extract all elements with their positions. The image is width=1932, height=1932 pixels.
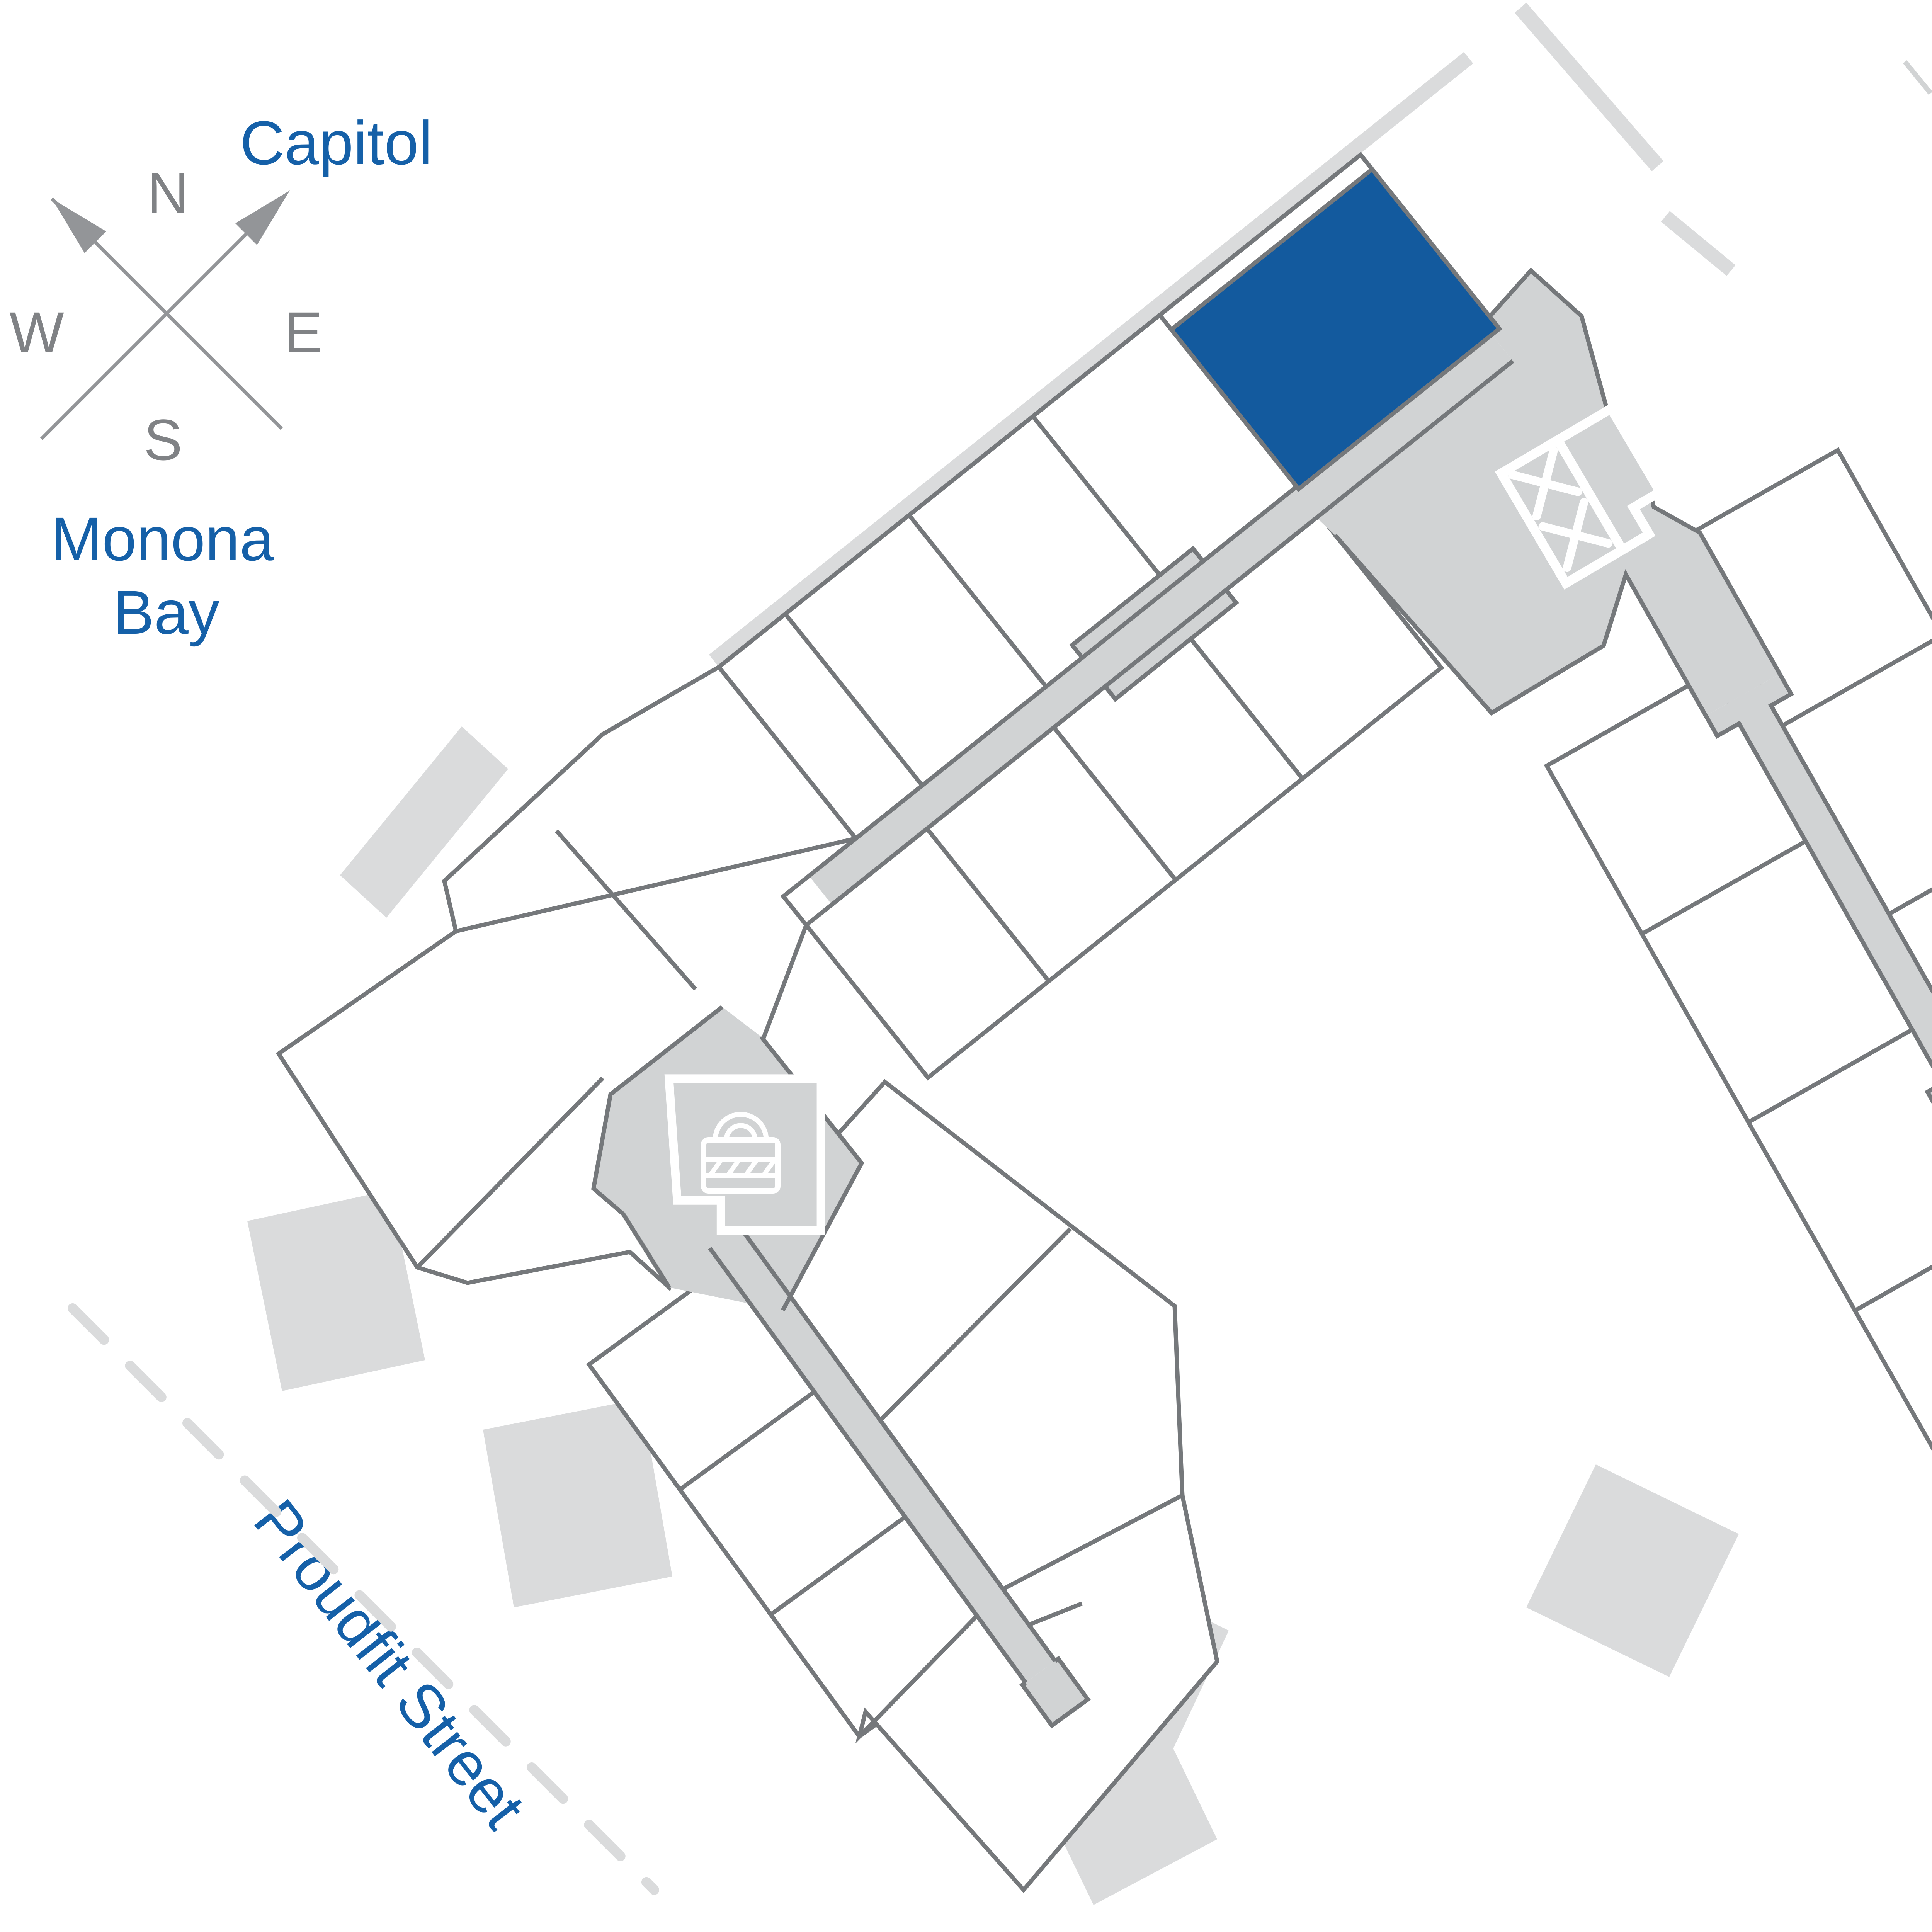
svg-text:N: N	[147, 161, 189, 226]
svg-text:Bay: Bay	[113, 578, 219, 647]
svg-text:S: S	[144, 407, 182, 472]
svg-text:Capitol: Capitol	[240, 108, 432, 177]
svg-text:E: E	[284, 300, 323, 365]
svg-text:Monona: Monona	[51, 504, 274, 573]
svg-text:W: W	[9, 300, 64, 365]
